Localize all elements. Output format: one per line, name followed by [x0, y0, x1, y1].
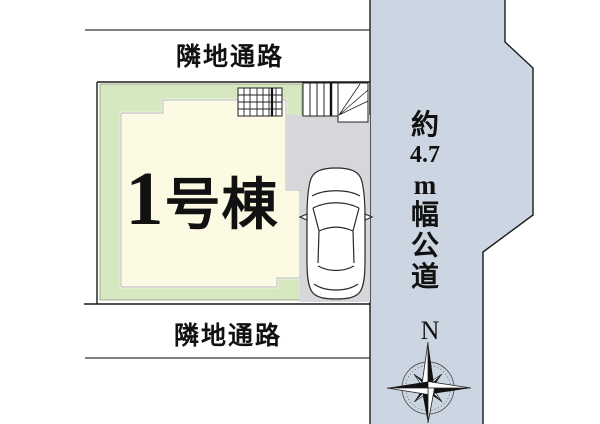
building-number: 1: [126, 157, 165, 241]
road-label-char: 約: [411, 110, 439, 141]
building-suffix: 号棟: [165, 175, 279, 237]
road-width-label: 約 4.7 m 幅 公 道: [403, 110, 447, 293]
staircase: [303, 83, 368, 122]
road-label-char: 4.7: [410, 141, 440, 170]
grid-hatch-area: [238, 88, 282, 116]
road-label-char: 公: [411, 231, 439, 262]
building-label: 1号棟: [106, 160, 298, 259]
site-plan: 隣地通路 1号棟 隣地通路 約 4.7 m 幅 公 道 N: [0, 0, 600, 424]
road-label-char: 道: [411, 262, 439, 293]
car-top-view-icon: [300, 168, 372, 299]
bottom-passage-label: 隣地通路: [158, 316, 298, 352]
compass-north-label: N: [413, 316, 447, 346]
top-passage-label: 隣地通路: [160, 37, 300, 73]
road-area: [370, 0, 533, 424]
road-label-char: 幅: [411, 200, 439, 231]
road-label-char: m: [414, 170, 437, 200]
site-plan-drawing: [0, 0, 600, 424]
